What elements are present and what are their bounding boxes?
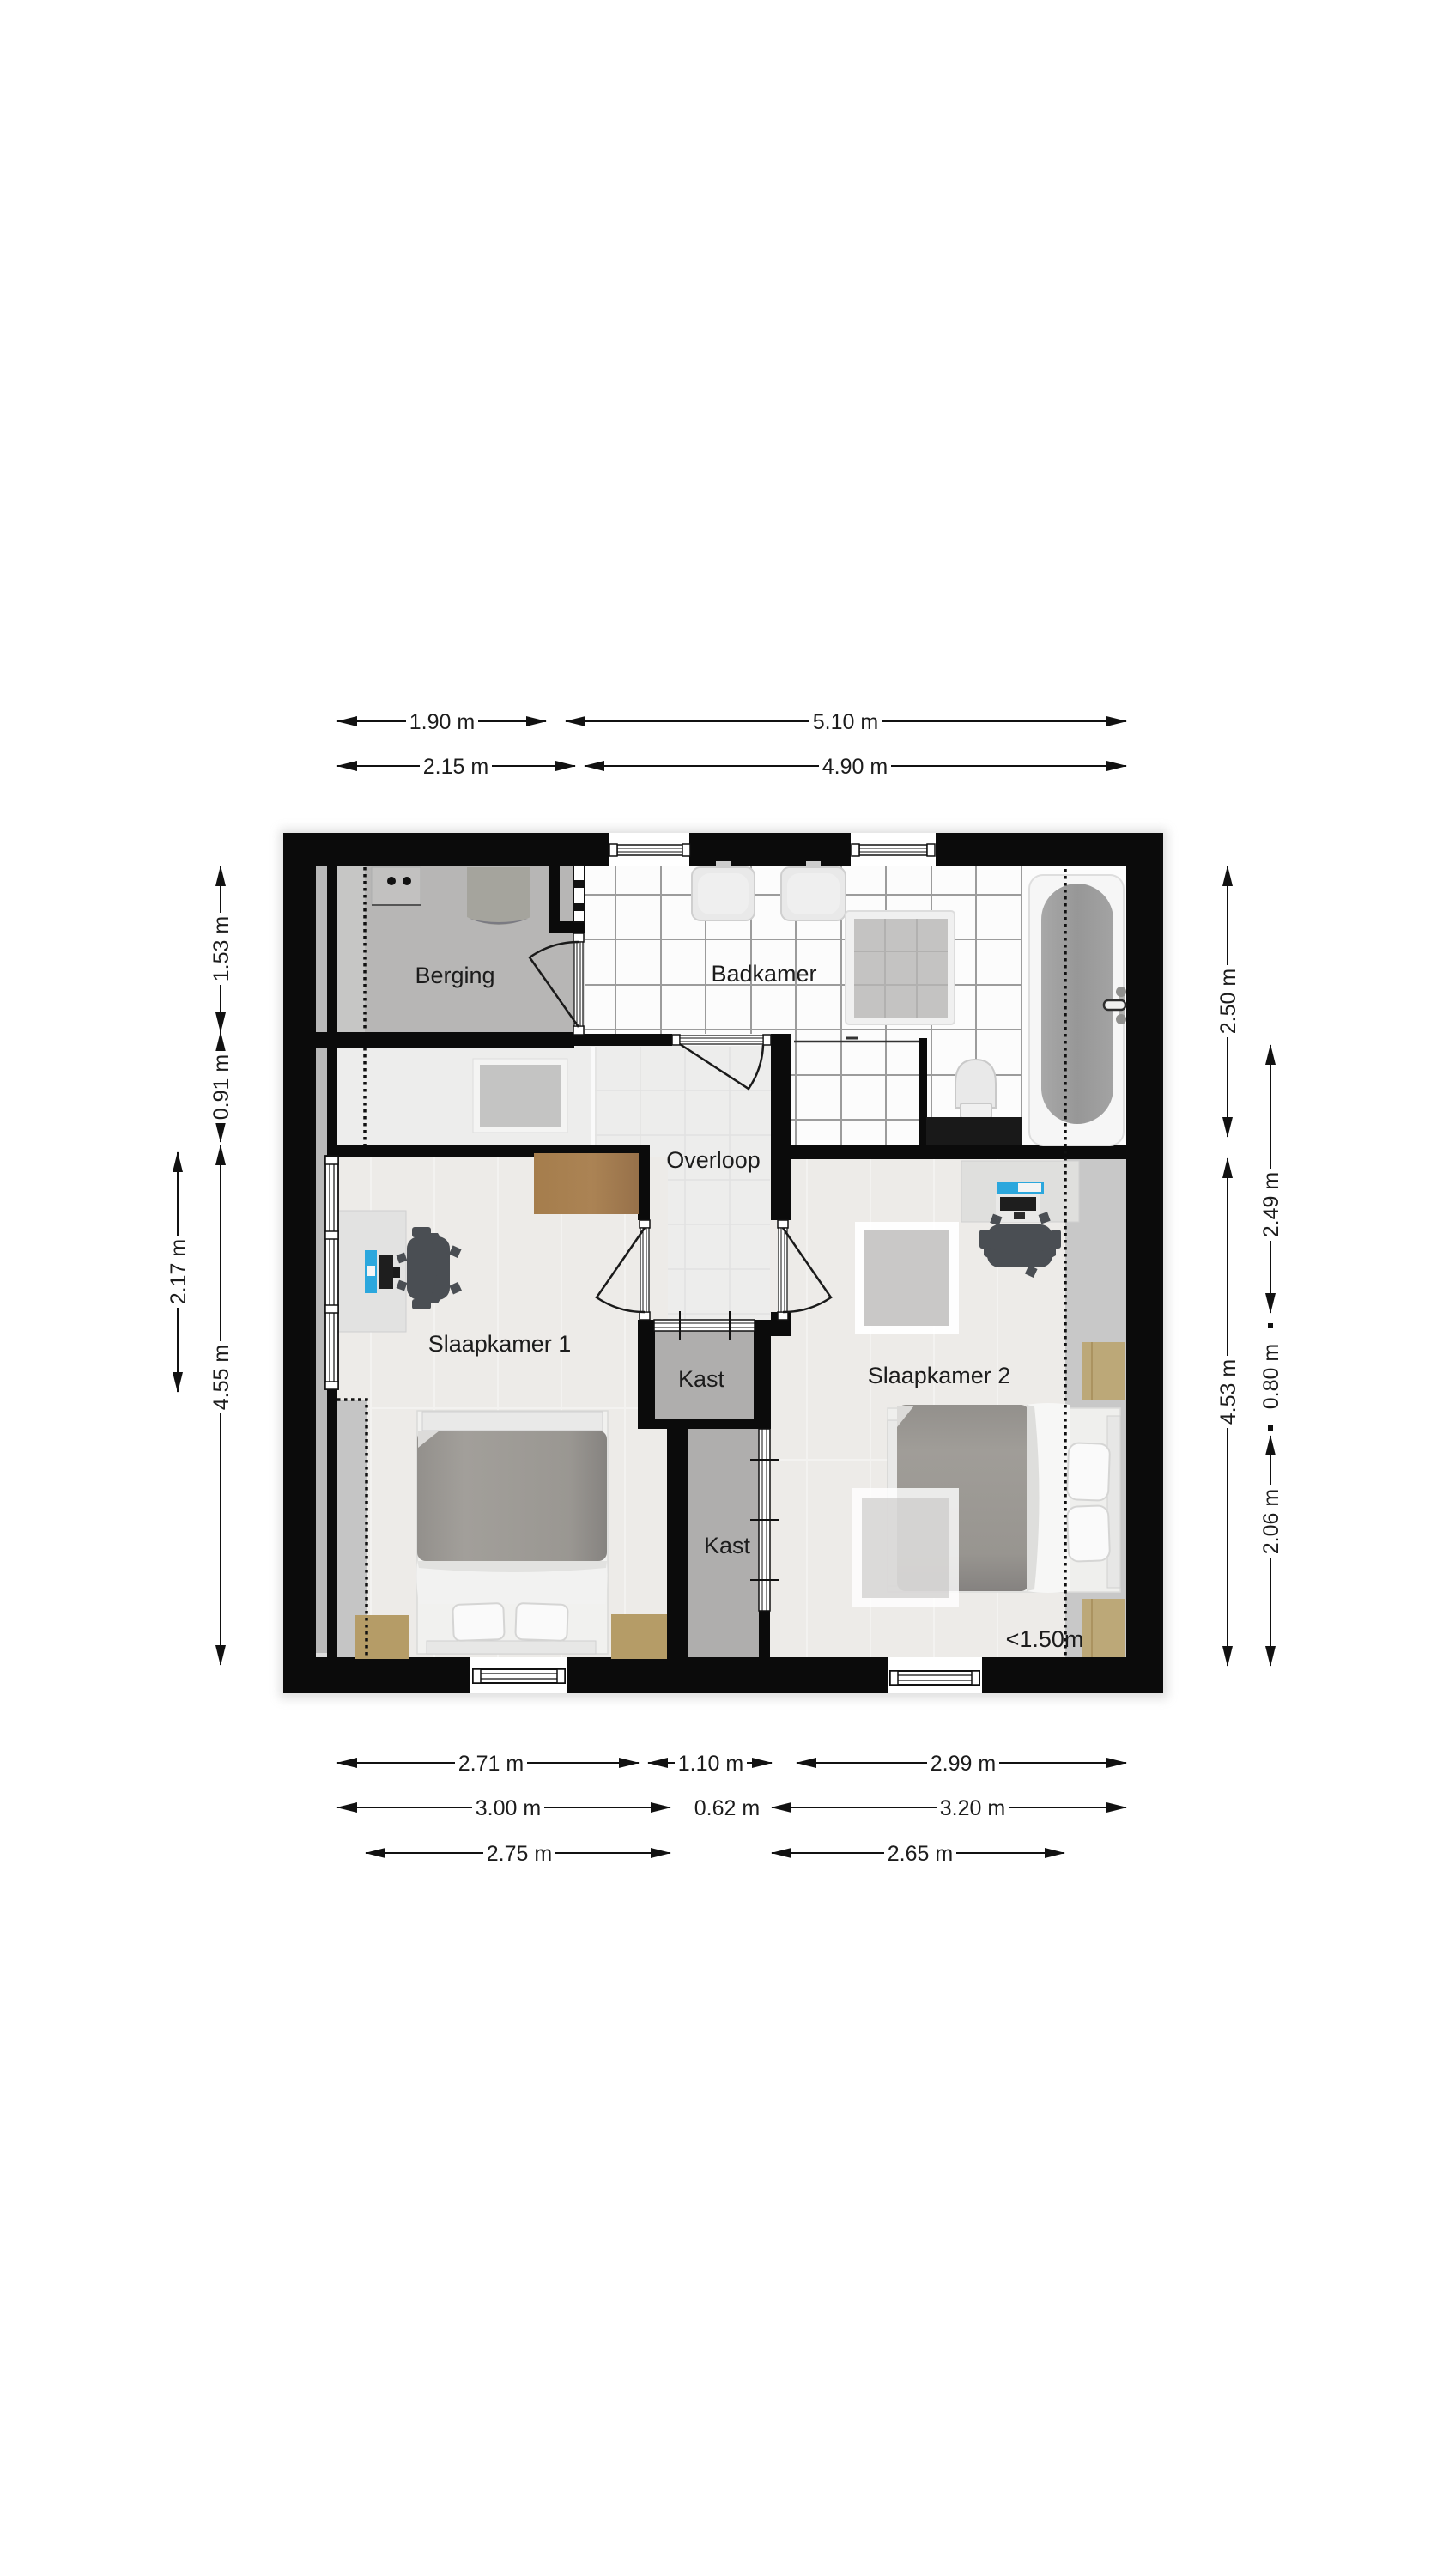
svg-text:3.20 m: 3.20 m bbox=[940, 1796, 1005, 1820]
svg-text:2.17 m: 2.17 m bbox=[167, 1239, 191, 1304]
svg-text:1.90 m: 1.90 m bbox=[409, 710, 475, 734]
svg-text:1.53 m: 1.53 m bbox=[209, 916, 233, 981]
svg-text:Overloop: Overloop bbox=[666, 1147, 761, 1173]
svg-text:2.75 m: 2.75 m bbox=[487, 1842, 552, 1866]
svg-text:0.91 m: 0.91 m bbox=[209, 1054, 233, 1120]
svg-text:<1.50m: <1.50m bbox=[1006, 1626, 1084, 1652]
svg-text:2.65 m: 2.65 m bbox=[888, 1842, 953, 1866]
svg-text:2.71 m: 2.71 m bbox=[458, 1752, 524, 1776]
svg-text:4.90 m: 4.90 m bbox=[822, 755, 888, 779]
svg-text:3.00 m: 3.00 m bbox=[476, 1796, 541, 1820]
svg-text:Badkamer: Badkamer bbox=[711, 961, 816, 987]
svg-text:2.49 m: 2.49 m bbox=[1259, 1172, 1283, 1237]
svg-text:Slaapkamer 2: Slaapkamer 2 bbox=[868, 1363, 1011, 1388]
svg-text:0.80 m: 0.80 m bbox=[1259, 1344, 1283, 1409]
svg-text:Kast: Kast bbox=[704, 1533, 751, 1558]
svg-text:2.50 m: 2.50 m bbox=[1216, 969, 1240, 1034]
svg-text:4.55 m: 4.55 m bbox=[209, 1345, 233, 1410]
svg-text:Slaapkamer 1: Slaapkamer 1 bbox=[428, 1331, 572, 1357]
svg-text:2.06 m: 2.06 m bbox=[1259, 1489, 1283, 1554]
svg-text:5.10 m: 5.10 m bbox=[813, 710, 878, 734]
svg-text:4.53 m: 4.53 m bbox=[1216, 1359, 1240, 1425]
svg-text:2.99 m: 2.99 m bbox=[931, 1752, 996, 1776]
svg-text:2.15 m: 2.15 m bbox=[423, 755, 488, 779]
svg-text:0.62 m: 0.62 m bbox=[694, 1796, 760, 1820]
svg-text:Berging: Berging bbox=[415, 963, 494, 988]
svg-text:1.10 m: 1.10 m bbox=[678, 1752, 743, 1776]
svg-text:Kast: Kast bbox=[678, 1366, 725, 1392]
